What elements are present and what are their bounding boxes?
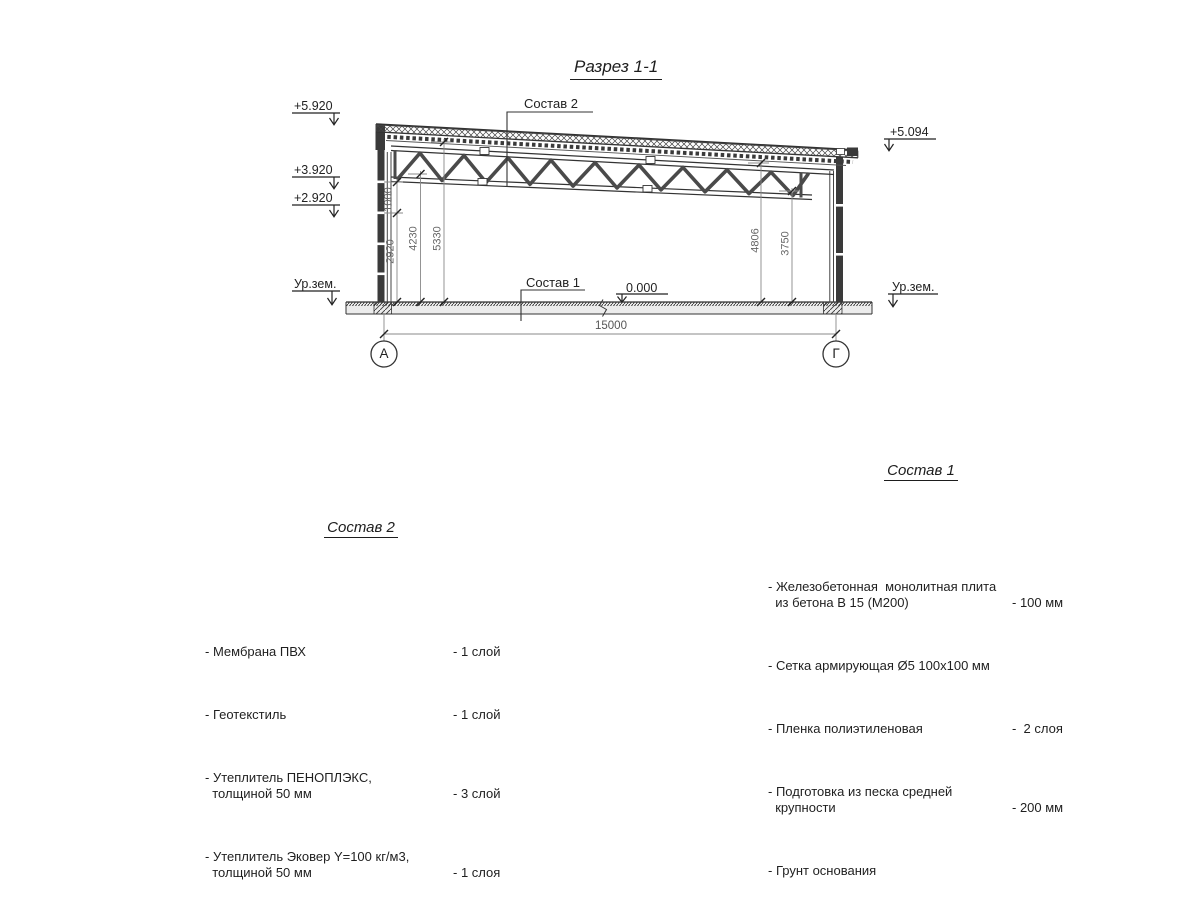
list-item: - Мембрана ПВХ - 1 слой — [205, 644, 517, 660]
material-name: - Грунт основания — [768, 863, 1012, 879]
left-footing — [374, 302, 392, 314]
dim-label-overall: 15000 — [582, 320, 640, 332]
material-name: - Сетка армирующая Ø5 100х100 мм — [768, 658, 1012, 674]
list-item: - Грунт основания — [768, 863, 1074, 879]
material-qty: - 1 слоя — [453, 865, 500, 881]
sostav1-title: Состав 1 — [768, 463, 1074, 479]
elevation-label-5094: +5.094 — [890, 125, 929, 139]
axis-circles — [371, 341, 849, 367]
dim-label-3750: 3750 — [780, 216, 793, 272]
material-name: - Утеплитель Эковер Y=100 кг/м3, толщино… — [205, 849, 453, 881]
list-item: - Геотекстиль - 1 слой — [205, 707, 517, 723]
elevation-label-5920: +5.920 — [294, 99, 333, 113]
material-qty: - 1 слой — [453, 707, 501, 723]
ground-level-label-left: Ур.зем. — [294, 277, 336, 291]
leader-label-sostav1: Состав 1 — [518, 275, 588, 290]
drawing-sheet: Разрез 1-1 +5.920 +3.920 +2.920 Ур.зем. … — [0, 0, 1200, 900]
dim-label-4230: 4230 — [408, 211, 421, 267]
roof-assembly — [376, 124, 858, 166]
list-item: - Подготовка из песка средней крупности … — [768, 784, 1074, 816]
axis-letter-g: Г — [823, 346, 849, 361]
material-qty: - 100 мм — [1012, 595, 1063, 611]
material-qty: - 1 слой — [453, 644, 501, 660]
sostav2-list: Состав 2 - Мембрана ПВХ - 1 слой - Геоте… — [205, 488, 517, 900]
drawing-title: Разрез 1-1 — [570, 57, 662, 80]
steel-truss — [391, 146, 834, 200]
leader-label-sostav2: Состав 2 — [505, 96, 597, 111]
material-qty: - 200 мм — [1012, 800, 1063, 816]
material-qty: - 2 слоя — [1012, 721, 1063, 737]
material-name: - Железобетонная монолитная плита из бет… — [768, 579, 1012, 611]
roof-edge-cap — [847, 148, 858, 157]
material-qty: - 3 слой — [453, 786, 501, 802]
sostav2-title: Состав 2 — [205, 520, 517, 536]
elevation-label-2920: +2.920 — [294, 191, 333, 205]
dim-label-1000: 1000 — [383, 172, 396, 228]
dim-label-5330: 5330 — [432, 211, 445, 267]
right-footing — [824, 302, 843, 314]
material-name: - Утеплитель ПЕНОПЛЭКС, толщиной 50 мм — [205, 770, 453, 802]
material-name: - Мембрана ПВХ — [205, 644, 453, 660]
list-item: - Железобетонная монолитная плита из бет… — [768, 579, 1074, 611]
material-name: - Подготовка из песка средней крупности — [768, 784, 1012, 816]
sostav1-list: Состав 1 - Железобетонная монолитная пли… — [768, 431, 1074, 900]
list-item: - Утеплитель Эковер Y=100 кг/м3, толщино… — [205, 849, 517, 881]
ground-level-label-right: Ур.зем. — [892, 280, 934, 294]
dim-label-2920: 2920 — [385, 224, 398, 280]
floor-level-label: 0.000 — [626, 281, 657, 295]
right-wall — [830, 157, 843, 302]
material-name: - Пленка полиэтиленовая — [768, 721, 1012, 737]
axis-letter-a: А — [371, 346, 397, 361]
material-name: - Геотекстиль — [205, 707, 453, 723]
floor-slab — [346, 300, 872, 317]
dim-label-4806: 4806 — [750, 213, 763, 269]
list-item: - Утеплитель ПЕНОПЛЭКС, толщиной 50 мм -… — [205, 770, 517, 802]
truss-diagonals — [398, 153, 808, 195]
elevation-label-3920: +3.920 — [294, 163, 333, 177]
list-item: - Пленка полиэтиленовая - 2 слоя — [768, 721, 1074, 737]
list-item: - Сетка армирующая Ø5 100х100 мм — [768, 658, 1074, 674]
